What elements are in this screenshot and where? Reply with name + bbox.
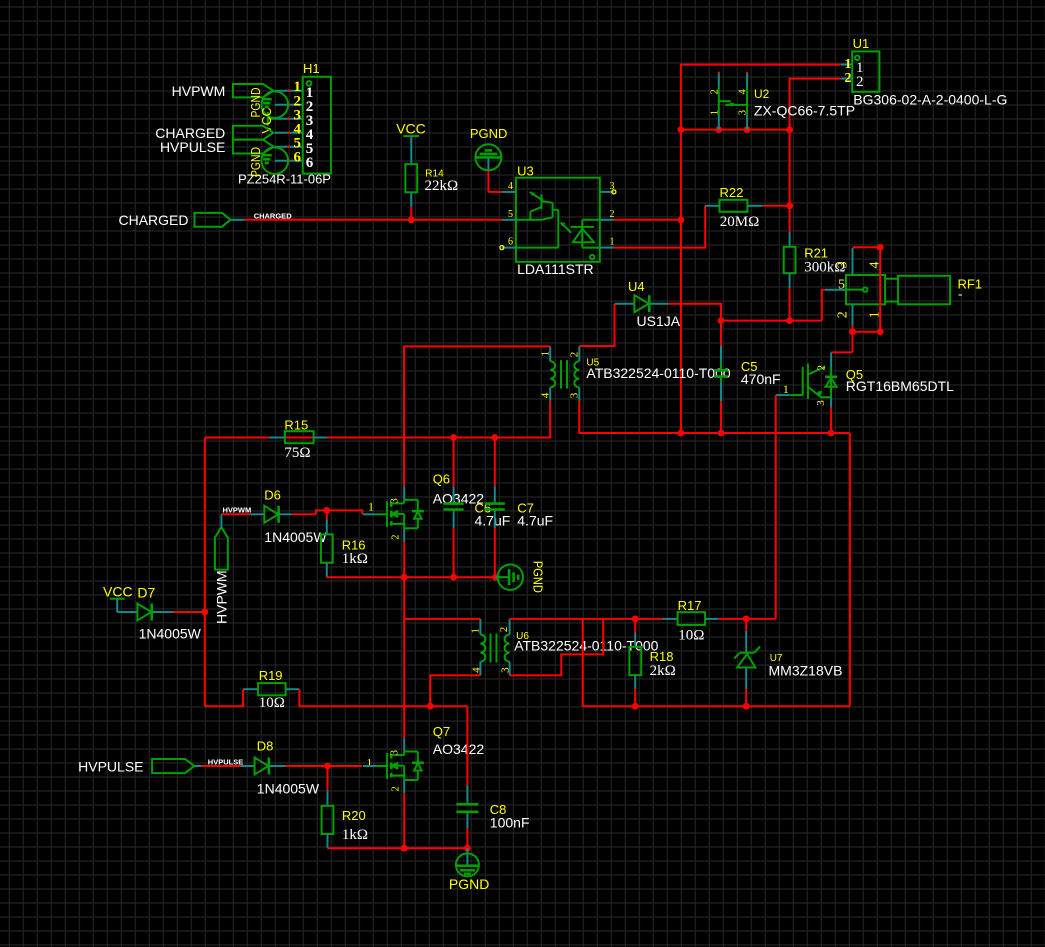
svg-text:22kΩ: 22kΩ: [425, 178, 459, 194]
svg-text:6: 6: [306, 155, 314, 171]
svg-text:LDA111STR: LDA111STR: [517, 261, 594, 277]
svg-text:4: 4: [738, 89, 749, 95]
svg-text:10Ω: 10Ω: [678, 628, 704, 644]
svg-text:PGND: PGND: [531, 561, 546, 593]
svg-text:1N4005W: 1N4005W: [139, 625, 202, 641]
svg-text:3: 3: [499, 667, 511, 673]
svg-text:470nF: 470nF: [741, 371, 781, 387]
svg-text:4: 4: [508, 181, 513, 192]
svg-text:2: 2: [856, 74, 864, 90]
svg-text:HVPWM: HVPWM: [223, 505, 252, 514]
svg-text:VCC: VCC: [259, 108, 274, 134]
svg-text:6: 6: [508, 237, 513, 248]
svg-text:3: 3: [738, 110, 749, 115]
svg-text:US1JA: US1JA: [637, 313, 681, 329]
svg-text:VCC: VCC: [396, 121, 426, 137]
svg-text:1: 1: [366, 756, 372, 770]
svg-text:20MΩ: 20MΩ: [720, 214, 760, 230]
svg-text:3: 3: [815, 400, 827, 406]
svg-text:Q6: Q6: [433, 472, 450, 487]
svg-text:6: 6: [294, 149, 302, 165]
svg-text:R17: R17: [678, 598, 702, 613]
svg-text:HVPWM: HVPWM: [214, 570, 230, 624]
svg-text:2kΩ: 2kΩ: [650, 663, 676, 679]
svg-text:1kΩ: 1kΩ: [342, 827, 368, 843]
svg-text:2: 2: [610, 209, 615, 220]
svg-text:PGND: PGND: [248, 147, 263, 177]
svg-text:H1: H1: [303, 61, 320, 76]
svg-text:HVPWM: HVPWM: [172, 83, 226, 99]
svg-text:3: 3: [610, 181, 615, 192]
svg-text:CHARGED: CHARGED: [118, 212, 188, 228]
svg-text:3: 3: [390, 750, 401, 755]
svg-text:4.7uF: 4.7uF: [517, 513, 553, 529]
svg-text:2: 2: [845, 71, 852, 86]
svg-text:3: 3: [569, 392, 581, 398]
svg-text:HVPULSE: HVPULSE: [208, 757, 243, 766]
svg-text:2: 2: [569, 352, 581, 358]
svg-text:ZX-QC66-7.5TP: ZX-QC66-7.5TP: [754, 103, 855, 119]
svg-text:5: 5: [838, 278, 845, 293]
svg-text:RGT16BM65DTL: RGT16BM65DTL: [846, 378, 954, 394]
svg-text:R22: R22: [720, 185, 744, 200]
svg-text:4: 4: [540, 392, 552, 398]
svg-text:D7: D7: [137, 585, 155, 601]
svg-text:PGND: PGND: [449, 876, 489, 892]
svg-text:1N4005W: 1N4005W: [257, 781, 320, 797]
svg-text:2: 2: [498, 627, 510, 633]
svg-text:1: 1: [610, 237, 615, 248]
svg-text:PGND: PGND: [470, 126, 508, 141]
svg-text:Q7: Q7: [433, 724, 450, 739]
svg-text:U3: U3: [517, 164, 534, 179]
svg-text:1: 1: [783, 382, 789, 396]
svg-text:5: 5: [508, 209, 513, 220]
svg-text:4: 4: [470, 667, 482, 673]
svg-text:1N4005W: 1N4005W: [264, 529, 327, 545]
svg-text:U4: U4: [628, 279, 645, 294]
svg-text:D6: D6: [264, 488, 281, 503]
svg-text:D8: D8: [257, 739, 274, 754]
svg-text:R15: R15: [284, 418, 308, 433]
svg-text:CHARGED: CHARGED: [254, 212, 293, 221]
svg-text:1: 1: [368, 500, 374, 514]
svg-text:2: 2: [816, 365, 828, 371]
svg-text:-: -: [958, 287, 962, 302]
svg-text:3: 3: [390, 498, 401, 503]
svg-text:MM3Z18VB: MM3Z18VB: [769, 663, 843, 679]
svg-text:VCC: VCC: [103, 583, 133, 599]
svg-text:R20: R20: [342, 808, 366, 823]
svg-text:ATB322524-0110-T000: ATB322524-0110-T000: [586, 365, 730, 381]
svg-text:2: 2: [709, 89, 720, 94]
svg-text:1: 1: [540, 351, 552, 357]
svg-text:R21: R21: [804, 246, 828, 261]
svg-text:ATB322524-0110-T000: ATB322524-0110-T000: [514, 638, 658, 654]
svg-text:HVPULSE: HVPULSE: [160, 139, 225, 155]
svg-text:1: 1: [845, 57, 852, 72]
svg-text:10Ω: 10Ω: [259, 695, 285, 711]
svg-text:100nF: 100nF: [490, 815, 530, 831]
svg-text:1kΩ: 1kΩ: [342, 551, 368, 567]
svg-text:1: 1: [709, 110, 720, 115]
svg-text:R19: R19: [259, 668, 283, 683]
svg-text:HVPULSE: HVPULSE: [78, 759, 143, 775]
svg-text:R18: R18: [650, 649, 674, 664]
svg-text:BG306-02-A-2-0400-L-G: BG306-02-A-2-0400-L-G: [853, 92, 1007, 108]
svg-text:75Ω: 75Ω: [284, 445, 310, 461]
svg-text:1: 1: [470, 628, 482, 634]
svg-text:2: 2: [391, 786, 402, 791]
svg-text:3: 3: [836, 262, 851, 269]
svg-text:2: 2: [391, 535, 402, 540]
svg-text:U2: U2: [754, 87, 770, 101]
svg-text:2: 2: [836, 311, 851, 318]
svg-text:U1: U1: [853, 36, 870, 51]
svg-text:AO3422: AO3422: [433, 741, 485, 757]
svg-text:4.7uF: 4.7uF: [475, 513, 511, 529]
